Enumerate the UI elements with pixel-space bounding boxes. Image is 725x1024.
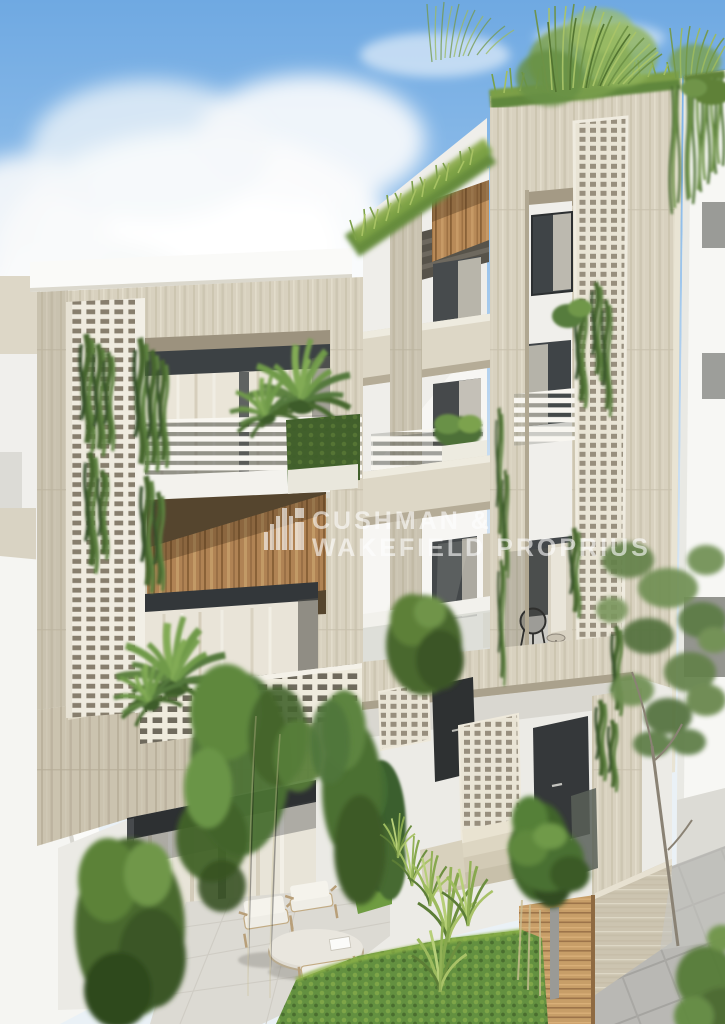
svg-text:CUSHMAN &: CUSHMAN &: [312, 507, 492, 535]
svg-text:WAKEFIELD PROPRIUS: WAKEFIELD PROPRIUS: [312, 534, 651, 562]
